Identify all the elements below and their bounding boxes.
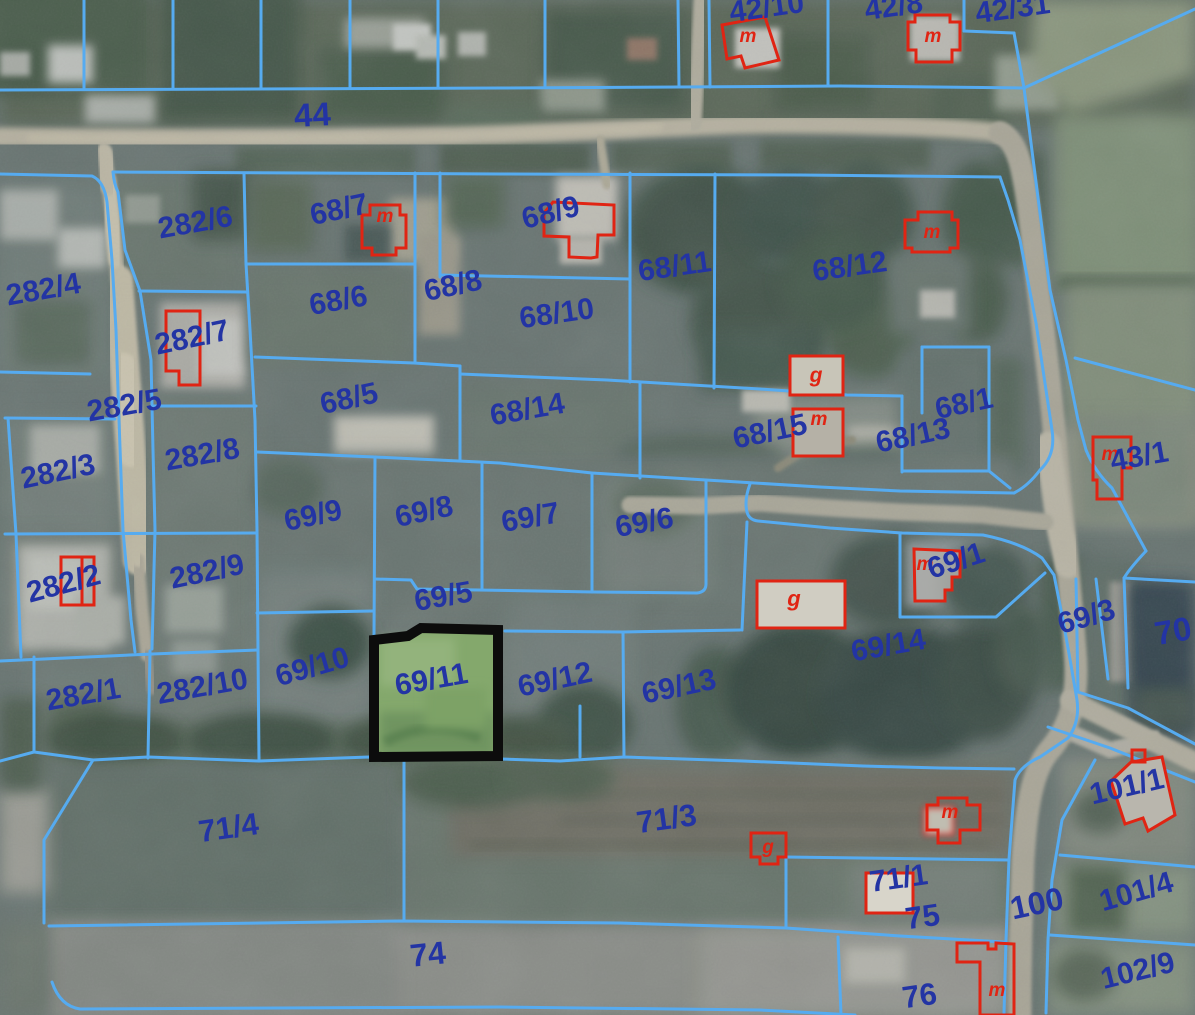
- svg-text:m: m: [925, 26, 942, 47]
- svg-text:74: 74: [408, 934, 447, 974]
- svg-text:g: g: [786, 586, 801, 611]
- svg-text:75: 75: [903, 897, 942, 936]
- svg-text:m: m: [377, 206, 394, 227]
- svg-text:44: 44: [293, 95, 332, 134]
- svg-text:76: 76: [900, 976, 939, 1015]
- svg-text:m: m: [740, 26, 757, 47]
- svg-text:70: 70: [1152, 609, 1195, 652]
- svg-text:m: m: [942, 802, 959, 823]
- svg-text:g: g: [809, 364, 823, 387]
- svg-text:g: g: [761, 837, 774, 858]
- svg-text:m: m: [924, 222, 941, 243]
- svg-text:m: m: [811, 409, 828, 430]
- svg-text:m: m: [989, 980, 1006, 1001]
